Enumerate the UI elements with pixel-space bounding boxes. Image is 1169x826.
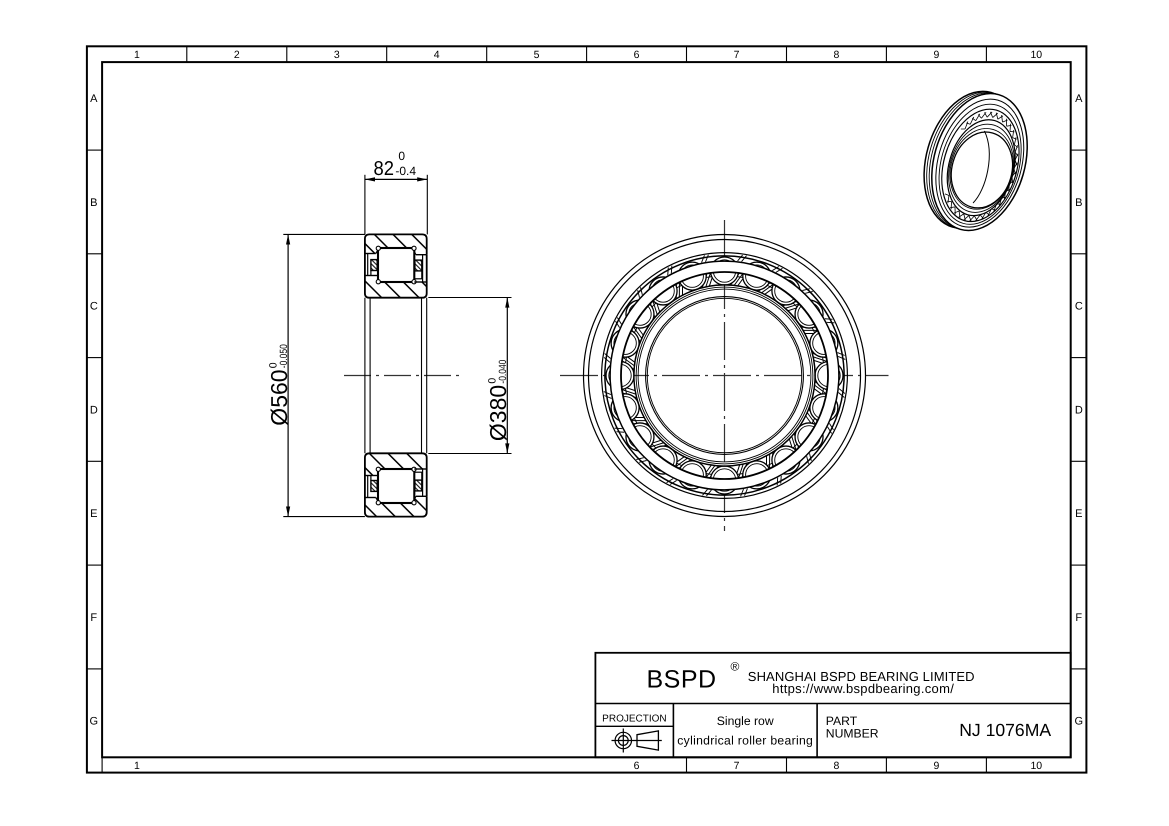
svg-text:C: C	[90, 301, 98, 313]
svg-text:10: 10	[1030, 760, 1042, 772]
svg-text:PROJECTION: PROJECTION	[602, 713, 666, 724]
svg-text:G: G	[1075, 716, 1084, 728]
svg-text:B: B	[1075, 197, 1082, 209]
svg-text:E: E	[1075, 508, 1082, 520]
svg-text:NJ 1076MA: NJ 1076MA	[959, 720, 1051, 740]
svg-text:82: 82	[374, 158, 395, 180]
svg-text:cylindrical roller bearing: cylindrical roller bearing	[677, 734, 813, 748]
svg-text:-0.040: -0.040	[497, 359, 509, 383]
svg-text:2: 2	[234, 49, 240, 61]
svg-text:F: F	[1075, 612, 1082, 624]
svg-text:-0.4: -0.4	[395, 164, 416, 178]
svg-text:4: 4	[434, 49, 440, 61]
svg-text:Ø560: Ø560	[266, 369, 292, 425]
svg-text:1: 1	[134, 49, 140, 61]
svg-text:6: 6	[634, 760, 640, 772]
svg-text:BSPD: BSPD	[647, 666, 717, 694]
svg-text:A: A	[1075, 93, 1083, 105]
svg-text:7: 7	[734, 760, 740, 772]
svg-text:NUMBER: NUMBER	[826, 727, 879, 741]
svg-text:1: 1	[134, 760, 140, 772]
svg-text:G: G	[90, 716, 99, 728]
svg-text:E: E	[90, 508, 97, 520]
svg-text:0: 0	[398, 149, 405, 163]
svg-text:Ø380: Ø380	[485, 385, 511, 441]
svg-text:9: 9	[933, 760, 939, 772]
svg-text:D: D	[90, 405, 98, 417]
svg-text:10: 10	[1030, 49, 1042, 61]
svg-text:8: 8	[833, 760, 839, 772]
svg-text:-0.050: -0.050	[278, 344, 290, 368]
svg-text:C: C	[1075, 301, 1083, 313]
svg-text:F: F	[90, 612, 97, 624]
svg-text:Single row: Single row	[717, 714, 774, 728]
svg-text:B: B	[90, 197, 97, 209]
svg-text:5: 5	[534, 49, 540, 61]
svg-text:6: 6	[634, 49, 640, 61]
svg-text:®: ®	[731, 660, 740, 674]
svg-text:8: 8	[833, 49, 839, 61]
svg-text:D: D	[1075, 405, 1083, 417]
svg-text:https://www.bspdbearing.com/: https://www.bspdbearing.com/	[772, 681, 954, 696]
svg-text:A: A	[90, 93, 98, 105]
svg-text:9: 9	[933, 49, 939, 61]
svg-text:3: 3	[334, 49, 340, 61]
svg-text:7: 7	[734, 49, 740, 61]
